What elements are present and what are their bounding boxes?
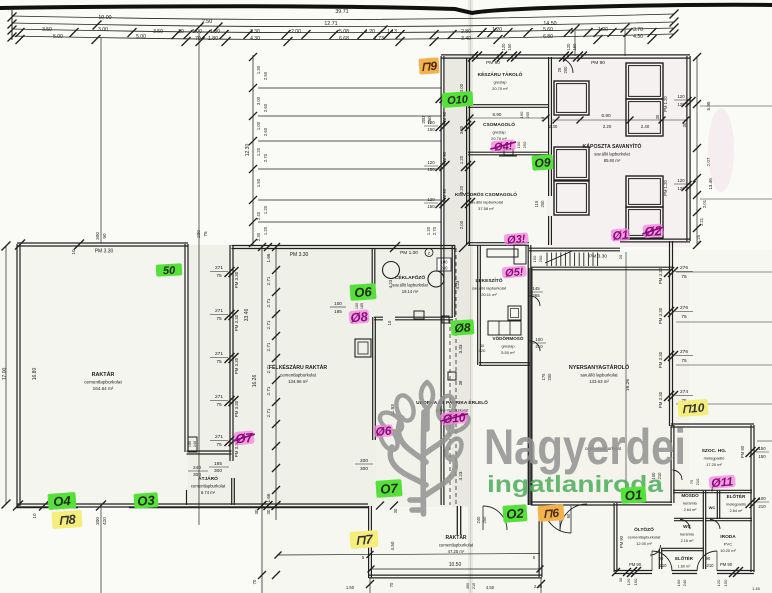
- svg-text:75: 75: [216, 316, 222, 322]
- svg-text:melegpadló: melegpadló: [704, 456, 725, 461]
- svg-text:2.00: 2.00: [291, 29, 301, 35]
- svg-text:4.50: 4.50: [486, 585, 495, 590]
- svg-text:150: 150: [427, 127, 435, 132]
- svg-text:2.71: 2.71: [266, 386, 271, 395]
- svg-text:1.50: 1.50: [346, 585, 355, 590]
- svg-text:30: 30: [393, 508, 398, 513]
- svg-text:150: 150: [507, 43, 512, 51]
- svg-text:240: 240: [476, 516, 481, 524]
- svg-text:greslap: greslap: [492, 130, 506, 135]
- svg-text:RAKTÁR: RAKTÁR: [445, 534, 466, 541]
- svg-text:75: 75: [681, 314, 687, 320]
- svg-text:100: 100: [535, 337, 543, 342]
- svg-text:200: 200: [421, 116, 426, 124]
- svg-text:2.40: 2.40: [256, 211, 261, 220]
- svg-text:1.20: 1.20: [365, 29, 375, 35]
- svg-text:100: 100: [334, 301, 342, 306]
- svg-text:265: 265: [532, 293, 540, 298]
- svg-text:100: 100: [676, 579, 681, 586]
- svg-text:O9: O9: [534, 155, 551, 170]
- svg-text:390: 390: [466, 583, 470, 589]
- svg-text:1.20: 1.20: [256, 147, 261, 156]
- svg-text:Ø11: Ø11: [711, 474, 734, 490]
- svg-text:276: 276: [680, 265, 688, 271]
- svg-text:271: 271: [215, 265, 223, 271]
- svg-text:1.80: 1.80: [208, 36, 218, 42]
- svg-text:200: 200: [538, 255, 543, 262]
- svg-text:115: 115: [534, 200, 539, 207]
- svg-text:1.00: 1.00: [256, 121, 261, 130]
- svg-text:4.23: 4.23: [458, 471, 463, 480]
- svg-text:cementlapburkolat: cementlapburkolat: [191, 484, 226, 489]
- svg-text:100: 100: [188, 441, 192, 447]
- svg-text:Ø5!: Ø5!: [505, 266, 525, 280]
- svg-text:10.20 m²: 10.20 m²: [720, 548, 736, 553]
- svg-text:1.45: 1.45: [752, 586, 761, 591]
- svg-text:120: 120: [427, 160, 435, 165]
- svg-text:300: 300: [95, 517, 100, 525]
- svg-text:120: 120: [501, 43, 506, 51]
- svg-text:25: 25: [557, 67, 562, 72]
- svg-text:O6: O6: [354, 284, 373, 300]
- svg-text:185: 185: [360, 303, 364, 309]
- svg-text:2.60: 2.60: [263, 127, 268, 136]
- svg-text:PM 3.30: PM 3.30: [234, 400, 239, 417]
- svg-text:276: 276: [680, 305, 688, 311]
- svg-text:2.40: 2.40: [641, 124, 650, 129]
- svg-text:320: 320: [479, 348, 486, 353]
- svg-text:PM 3.30: PM 3.30: [234, 314, 239, 331]
- svg-text:10: 10: [32, 513, 37, 519]
- svg-text:3.40: 3.40: [461, 36, 471, 42]
- svg-text:2.70: 2.70: [263, 153, 268, 162]
- svg-text:PM 3.30: PM 3.30: [234, 357, 239, 374]
- svg-text:150: 150: [427, 167, 435, 172]
- svg-text:2.50: 2.50: [263, 71, 268, 80]
- svg-text:150: 150: [572, 43, 577, 51]
- svg-text:1.20: 1.20: [263, 205, 268, 214]
- svg-text:2.30: 2.30: [549, 124, 558, 129]
- svg-text:PM 90: PM 90: [629, 562, 642, 567]
- svg-text:PM 1.00: PM 1.00: [400, 250, 418, 256]
- svg-text:75: 75: [203, 231, 208, 237]
- svg-text:120: 120: [427, 197, 435, 202]
- svg-text:sav.álló lapburkolat: sav.álló lapburkolat: [392, 283, 428, 288]
- svg-text:120: 120: [716, 579, 721, 586]
- svg-text:300: 300: [95, 232, 100, 240]
- svg-text:6.90: 6.90: [493, 112, 502, 117]
- svg-text:Ø10: Ø10: [442, 410, 466, 426]
- svg-text:1.20: 1.20: [263, 226, 268, 235]
- svg-text:O7: O7: [380, 481, 399, 497]
- svg-text:120: 120: [566, 43, 571, 51]
- svg-text:kerámia: kerámia: [683, 502, 697, 506]
- svg-text:PM 3.30: PM 3.30: [290, 252, 309, 258]
- svg-text:1.66: 1.66: [266, 253, 271, 262]
- svg-text:2.71: 2.71: [266, 408, 271, 417]
- svg-text:3.00: 3.00: [256, 96, 261, 105]
- svg-text:⊓8: ⊓8: [58, 512, 77, 528]
- svg-text:3.33: 3.33: [458, 344, 463, 353]
- svg-text:NYERSANYAGTÁROLÓ: NYERSANYAGTÁROLÓ: [569, 363, 629, 371]
- svg-text:47.25 m²: 47.25 m²: [448, 549, 465, 554]
- svg-text:210: 210: [660, 563, 668, 568]
- svg-text:Ø8: Ø8: [454, 320, 471, 335]
- svg-text:75: 75: [216, 442, 222, 448]
- svg-text:MOSDÓ: MOSDÓ: [681, 491, 699, 498]
- svg-text:1.25: 1.25: [696, 234, 701, 243]
- svg-text:2.60: 2.60: [263, 103, 268, 112]
- svg-text:1.20: 1.20: [426, 226, 431, 235]
- svg-text:ELŐTÉR: ELŐTÉR: [675, 556, 694, 561]
- svg-text:2.50: 2.50: [202, 19, 212, 25]
- svg-text:O3: O3: [137, 493, 156, 509]
- svg-text:1.00: 1.00: [192, 29, 202, 35]
- svg-text:kerámia: kerámia: [680, 533, 694, 537]
- svg-text:85.60 m²: 85.60 m²: [604, 158, 621, 163]
- svg-text:250: 250: [522, 141, 527, 148]
- svg-text:10.50: 10.50: [449, 562, 462, 568]
- svg-text:120: 120: [677, 102, 685, 107]
- svg-text:210: 210: [695, 478, 700, 485]
- svg-text:100: 100: [758, 496, 766, 501]
- svg-text:1.66: 1.66: [266, 493, 271, 502]
- svg-text:4.23: 4.23: [388, 279, 393, 288]
- svg-text:PM 90: PM 90: [619, 535, 624, 548]
- svg-text:8.74 m²: 8.74 m²: [201, 490, 216, 495]
- svg-text:90: 90: [102, 233, 107, 239]
- svg-text:240: 240: [193, 441, 197, 447]
- svg-text:30: 30: [655, 114, 660, 119]
- svg-text:120: 120: [626, 578, 631, 585]
- svg-text:Ø1: Ø1: [612, 228, 629, 243]
- svg-text:melegpadló: melegpadló: [726, 503, 746, 507]
- svg-text:150: 150: [633, 578, 638, 585]
- svg-text:75: 75: [689, 479, 694, 484]
- svg-text:5.00: 5.00: [136, 34, 146, 40]
- svg-text:271: 271: [215, 434, 223, 440]
- svg-text:30: 30: [266, 509, 271, 514]
- svg-text:150: 150: [427, 204, 435, 209]
- svg-text:75: 75: [216, 402, 222, 408]
- svg-text:3.50: 3.50: [153, 29, 163, 35]
- svg-text:200: 200: [196, 230, 201, 238]
- svg-text:271: 271: [215, 308, 223, 314]
- svg-text:SZOC. HG.: SZOC. HG.: [702, 448, 727, 454]
- svg-text:50: 50: [163, 265, 177, 278]
- svg-text:4.50: 4.50: [390, 541, 395, 550]
- svg-text:300: 300: [360, 466, 368, 472]
- svg-text:sav.álló lapburkolat: sav.álló lapburkolat: [469, 200, 504, 205]
- svg-text:2.70: 2.70: [432, 226, 437, 235]
- svg-text:30: 30: [618, 577, 623, 582]
- svg-text:sav.álló lapburkolat: sav.álló lapburkolat: [472, 286, 507, 291]
- svg-text:2.01: 2.01: [702, 199, 707, 208]
- svg-text:120: 120: [677, 94, 685, 99]
- svg-text:KÁPOSZTA SAVANYÍTÓ: KÁPOSZTA SAVANYÍTÓ: [583, 142, 642, 150]
- svg-text:5.60: 5.60: [543, 27, 553, 33]
- svg-text:2.20: 2.20: [603, 124, 612, 129]
- svg-text:38: 38: [458, 380, 463, 385]
- svg-text:420: 420: [102, 517, 107, 525]
- svg-text:2.71: 2.71: [266, 342, 271, 351]
- svg-text:PVC: PVC: [724, 542, 732, 547]
- svg-text:12.30: 12.30: [245, 144, 251, 157]
- svg-text:PM 90: PM 90: [591, 60, 605, 66]
- svg-text:PM 3.30: PM 3.30: [658, 351, 663, 368]
- svg-text:3.30: 3.30: [250, 29, 260, 35]
- svg-text:WC: WC: [709, 505, 716, 510]
- svg-text:3.00: 3.00: [459, 125, 464, 134]
- svg-text:200: 200: [360, 458, 368, 464]
- svg-text:PM 90: PM 90: [442, 151, 447, 164]
- svg-text:200: 200: [563, 66, 568, 74]
- svg-text:2.16 m²: 2.16 m²: [681, 539, 695, 543]
- svg-text:2.71: 2.71: [266, 276, 271, 285]
- svg-text:10: 10: [387, 320, 392, 325]
- svg-text:3.00: 3.00: [98, 27, 108, 33]
- svg-text:210: 210: [472, 583, 476, 589]
- svg-text:300: 300: [214, 468, 222, 474]
- svg-text:2.71: 2.71: [266, 298, 271, 307]
- svg-text:150: 150: [758, 454, 766, 459]
- svg-text:75: 75: [681, 274, 687, 280]
- svg-text:RAKTÁR: RAKTÁR: [92, 371, 115, 378]
- svg-text:O2: O2: [506, 506, 525, 522]
- svg-text:250: 250: [427, 116, 432, 124]
- svg-text:200: 200: [547, 373, 552, 381]
- svg-text:134.96 m²: 134.96 m²: [288, 379, 308, 384]
- svg-text:12.00 m²: 12.00 m²: [636, 541, 652, 546]
- svg-text:150: 150: [723, 579, 728, 586]
- svg-text:90: 90: [706, 556, 711, 561]
- svg-text:greslap: greslap: [493, 80, 507, 85]
- svg-text:cementlapburkolat: cementlapburkolat: [84, 380, 122, 385]
- svg-text:276: 276: [680, 349, 688, 355]
- svg-text:75: 75: [216, 273, 222, 279]
- svg-text:PM 3.30: PM 3.30: [234, 271, 239, 288]
- svg-text:150: 150: [532, 255, 537, 262]
- svg-text:Ø8: Ø8: [350, 309, 369, 326]
- svg-text:Nagyerdei: Nagyerdei: [484, 419, 686, 475]
- svg-text:37.58 m²: 37.58 m²: [478, 206, 494, 211]
- svg-text:O10: O10: [447, 94, 469, 107]
- svg-text:75: 75: [216, 359, 222, 365]
- svg-text:Ø3!: Ø3!: [507, 233, 527, 247]
- svg-text:O1: O1: [624, 487, 642, 503]
- svg-text:200: 200: [540, 200, 545, 208]
- svg-text:PM 90: PM 90: [720, 562, 733, 567]
- svg-text:271: 271: [215, 394, 223, 400]
- svg-text:240: 240: [682, 579, 687, 586]
- svg-text:150: 150: [516, 141, 521, 148]
- svg-text:10: 10: [540, 116, 545, 121]
- svg-text:2.71: 2.71: [266, 320, 271, 329]
- svg-text:240: 240: [193, 465, 201, 471]
- svg-text:⊓10: ⊓10: [681, 401, 705, 417]
- svg-text:190: 190: [519, 111, 524, 118]
- svg-text:PM 3.30: PM 3.30: [658, 391, 663, 408]
- svg-text:5.50 m²: 5.50 m²: [501, 350, 515, 355]
- svg-text:FÉLKÉSZÁRU RAKTÁR: FÉLKÉSZÁRU RAKTÁR: [269, 363, 327, 371]
- svg-text:10: 10: [71, 249, 76, 255]
- svg-text:⊓9: ⊓9: [421, 59, 438, 74]
- svg-text:145: 145: [532, 286, 540, 291]
- svg-text:PM 3.30: PM 3.30: [589, 254, 607, 260]
- svg-text:133.63 m²: 133.63 m²: [589, 379, 609, 384]
- svg-text:175: 175: [541, 373, 546, 381]
- svg-text:1.73: 1.73: [374, 36, 384, 42]
- svg-text:20: 20: [618, 254, 623, 259]
- svg-text:33.46: 33.46: [244, 309, 250, 322]
- svg-text:cementlapburkolat: cementlapburkolat: [628, 535, 662, 540]
- svg-text:2.64 m²: 2.64 m²: [684, 508, 698, 512]
- svg-text:6.90: 6.90: [601, 113, 611, 119]
- svg-text:⊓6: ⊓6: [543, 506, 560, 521]
- svg-text:10.00: 10.00: [98, 15, 111, 21]
- svg-text:PM 90: PM 90: [740, 445, 745, 458]
- svg-text:5.00: 5.00: [53, 34, 63, 40]
- svg-text:PM 3.30: PM 3.30: [95, 249, 114, 255]
- svg-text:PM 90: PM 90: [442, 188, 447, 201]
- svg-text:17.00: 17.00: [2, 368, 8, 381]
- svg-text:210: 210: [758, 504, 766, 509]
- svg-text:4.30: 4.30: [250, 36, 260, 42]
- svg-text:1.21: 1.21: [699, 217, 704, 226]
- svg-text:ÖLTÖZŐ: ÖLTÖZŐ: [634, 526, 654, 533]
- svg-text:1.30: 1.30: [256, 65, 261, 74]
- svg-text:19.14 m²: 19.14 m²: [402, 289, 419, 294]
- svg-text:205: 205: [525, 111, 530, 118]
- svg-text:greslap: greslap: [501, 344, 515, 349]
- svg-text:2.30: 2.30: [256, 232, 261, 241]
- svg-text:1.50: 1.50: [256, 178, 261, 187]
- svg-text:⊓7: ⊓7: [355, 532, 374, 548]
- svg-text:1.30: 1.30: [210, 29, 220, 35]
- svg-text:Ø6: Ø6: [375, 424, 392, 439]
- svg-text:120: 120: [677, 186, 685, 191]
- svg-text:PM 3.30: PM 3.30: [658, 307, 663, 324]
- svg-text:75: 75: [681, 358, 687, 364]
- svg-text:1.60 m²: 1.60 m²: [678, 565, 692, 569]
- svg-text:sav.álló lapburkolat: sav.álló lapburkolat: [580, 373, 618, 378]
- svg-text:2.64 m²: 2.64 m²: [730, 509, 744, 513]
- svg-text:70: 70: [389, 582, 394, 587]
- svg-text:20.11 m²: 20.11 m²: [481, 292, 497, 297]
- svg-text:17.20 m²: 17.20 m²: [706, 462, 722, 467]
- svg-text:sav.álló lapburkolat: sav.álló lapburkolat: [594, 152, 630, 157]
- svg-text:165: 165: [214, 461, 222, 467]
- svg-text:PM 90: PM 90: [486, 60, 500, 66]
- svg-text:164.64 m²: 164.64 m²: [93, 386, 114, 391]
- svg-text:16.26: 16.26: [252, 375, 258, 388]
- svg-text:6.80: 6.80: [543, 34, 553, 40]
- svg-text:2.00: 2.00: [459, 220, 464, 229]
- svg-text:185: 185: [334, 309, 342, 314]
- svg-text:PM 90: PM 90: [442, 111, 447, 124]
- svg-text:O4: O4: [53, 493, 72, 509]
- svg-text:120: 120: [677, 178, 685, 183]
- svg-text:5.08: 5.08: [339, 29, 349, 35]
- svg-text:3.50: 3.50: [42, 27, 52, 33]
- svg-text:70: 70: [252, 579, 257, 584]
- svg-text:1.20: 1.20: [459, 155, 464, 164]
- svg-text:cementlapburkolat: cementlapburkolat: [280, 373, 317, 378]
- svg-text:PM 1.20: PM 1.20: [663, 96, 668, 112]
- svg-text:cementlapburkolat: cementlapburkolat: [439, 543, 474, 548]
- svg-text:30: 30: [682, 122, 687, 127]
- svg-text:3.70: 3.70: [633, 27, 643, 33]
- svg-text:210: 210: [707, 563, 715, 568]
- svg-text:6.68: 6.68: [339, 36, 349, 42]
- svg-text:271: 271: [215, 351, 223, 357]
- svg-text:PM 1.20: PM 1.20: [663, 180, 668, 196]
- svg-text:4.30: 4.30: [633, 34, 643, 40]
- svg-text:90: 90: [659, 556, 664, 561]
- svg-text:IRODA: IRODA: [720, 534, 736, 540]
- svg-text:100: 100: [355, 303, 359, 309]
- svg-text:3.00: 3.00: [459, 83, 464, 92]
- svg-text:ELŐTÉR: ELŐTÉR: [727, 492, 746, 499]
- svg-text:150: 150: [758, 446, 766, 451]
- svg-text:39.71: 39.71: [335, 9, 348, 15]
- svg-text:274: 274: [680, 389, 688, 395]
- svg-text:16.80: 16.80: [32, 368, 38, 381]
- svg-text:12.71: 12.71: [324, 21, 337, 27]
- svg-text:2.40: 2.40: [534, 584, 543, 589]
- svg-text:2.80: 2.80: [461, 29, 471, 35]
- svg-text:PM 3.30: PM 3.30: [658, 267, 663, 284]
- svg-text:20.70 m²: 20.70 m²: [492, 86, 508, 91]
